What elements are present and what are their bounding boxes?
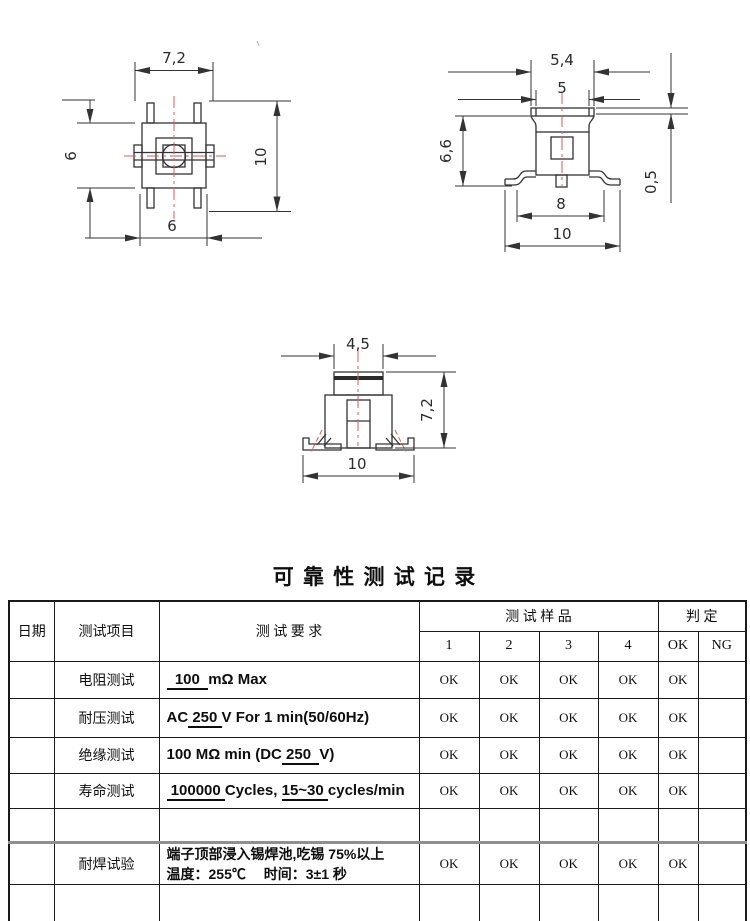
sample-result-cell-2: OK xyxy=(479,737,539,773)
judge-ng-cell xyxy=(698,698,746,737)
reliability-test-table-wrap: 日期 测试项目 测 试 要 求 测 试 样 品 判 定 1 2 3 4 OK N… xyxy=(8,600,747,921)
requirement-text: 温度：255℃ 时间：3±1 秒 xyxy=(167,866,347,882)
item-cell xyxy=(54,808,159,842)
dim-label-base-width: 10 xyxy=(347,455,366,473)
judge-ok-cell xyxy=(658,808,698,842)
judge-ok-cell: OK xyxy=(658,698,698,737)
sample-result-cell-1 xyxy=(419,885,479,921)
judge-ng-cell xyxy=(698,661,746,698)
requirement-text: V For 1 min(50/60Hz) xyxy=(222,709,370,726)
header-requirement: 测 试 要 求 xyxy=(159,601,419,661)
dim-label-right-height: 10 xyxy=(252,147,270,166)
requirement-line: AC 250 V For 1 min(50/60Hz) xyxy=(167,707,419,729)
dim-label-pin-span: 8 xyxy=(556,195,566,213)
sample-result-cell-3: OK xyxy=(539,661,598,698)
requirement-text: 100 MΩ min (DC xyxy=(167,746,282,763)
header-judgement: 判 定 xyxy=(658,601,746,631)
dim-label-base-width: 10 xyxy=(552,225,571,243)
sample-result-cell-3: OK xyxy=(539,773,598,808)
sample-result-cell-3 xyxy=(539,885,598,921)
judge-ok-cell: OK xyxy=(658,661,698,698)
judge-ok-cell: OK xyxy=(658,842,698,885)
dim-label-total-height: 7,2 xyxy=(418,398,436,422)
sample-result-cell-2: OK xyxy=(479,698,539,737)
requirement-cell: AC 250 V For 1 min(50/60Hz) xyxy=(159,698,419,737)
sample-result-cell-3 xyxy=(539,808,598,842)
requirement-cell: 100 MΩ min (DC 250 V) xyxy=(159,737,419,773)
requirement-text: V) xyxy=(319,746,334,763)
table-row xyxy=(9,808,746,842)
dim-label-flange-width: 5,4 xyxy=(550,51,574,69)
date-cell xyxy=(9,885,54,921)
requirement-value-underlined: 250 xyxy=(282,746,320,765)
date-cell xyxy=(9,842,54,885)
header-item: 测试项目 xyxy=(54,601,159,661)
table-row: 绝缘测试100 MΩ min (DC 250 V)OKOKOKOKOK xyxy=(9,737,746,773)
scan-artifact xyxy=(257,41,259,46)
judge-ok-cell xyxy=(658,885,698,921)
requirement-cell xyxy=(159,885,419,921)
judge-ng-cell xyxy=(698,885,746,921)
table-row xyxy=(9,885,746,921)
date-cell xyxy=(9,698,54,737)
judge-ng-cell xyxy=(698,842,746,885)
header-sample-2: 2 xyxy=(479,631,539,661)
sample-result-cell-1: OK xyxy=(419,661,479,698)
judge-ok-cell: OK xyxy=(658,773,698,808)
dim-label-left-height: 6 xyxy=(62,151,80,161)
requirement-value-underlined: 15~30 xyxy=(282,782,328,801)
judge-ng-cell xyxy=(698,737,746,773)
header-date: 日期 xyxy=(9,601,54,661)
date-cell xyxy=(9,808,54,842)
table-row: 寿命测试 100000 Cycles, 15~30 cycles/minOKOK… xyxy=(9,773,746,808)
sample-result-cell-3: OK xyxy=(539,842,598,885)
requirement-line: 100 mΩ Max xyxy=(167,669,419,691)
header-sample-3: 3 xyxy=(539,631,598,661)
sample-result-cell-1: OK xyxy=(419,773,479,808)
sample-result-cell-2: OK xyxy=(479,773,539,808)
requirement-line: 100 MΩ min (DC 250 V) xyxy=(167,744,419,766)
sample-result-cell-4 xyxy=(598,808,658,842)
requirement-cell: 100 mΩ Max xyxy=(159,661,419,698)
requirement-text: mΩ Max xyxy=(208,671,267,688)
requirement-value-underlined: 100 xyxy=(167,671,209,690)
reliability-test-table: 日期 测试项目 测 试 要 求 测 试 样 品 判 定 1 2 3 4 OK N… xyxy=(8,600,747,921)
top-view-drawing: 7,2 6 10 6 xyxy=(62,49,291,246)
sample-result-cell-2 xyxy=(479,885,539,921)
item-cell: 寿命测试 xyxy=(54,773,159,808)
item-cell: 绝缘测试 xyxy=(54,737,159,773)
item-cell xyxy=(54,885,159,921)
requirement-cell: 端子顶部浸入锡焊池,吃锡 75%以上温度：255℃ 时间：3±1 秒 xyxy=(159,842,419,885)
header-ng: NG xyxy=(698,631,746,661)
test-table-body: 电阻测试 100 mΩ MaxOKOKOKOKOK耐压测试AC 250 V Fo… xyxy=(9,661,746,921)
date-cell xyxy=(9,737,54,773)
requirement-line: 端子顶部浸入锡焊池,吃锡 75%以上 xyxy=(167,844,419,864)
sample-result-cell-4: OK xyxy=(598,773,658,808)
dim-label-stem-width: 4,5 xyxy=(346,335,370,353)
item-cell: 耐压测试 xyxy=(54,698,159,737)
sample-result-cell-4: OK xyxy=(598,661,658,698)
table-row: 电阻测试 100 mΩ MaxOKOKOKOKOK xyxy=(9,661,746,698)
datasheet-page: 7,2 6 10 6 xyxy=(0,0,750,921)
header-ok: OK xyxy=(658,631,698,661)
side-view-drawing: 5,4 5 6,6 0,5 8 10 xyxy=(437,51,688,252)
item-cell: 耐焊试验 xyxy=(54,842,159,885)
header-sample-4: 4 xyxy=(598,631,658,661)
judge-ng-cell xyxy=(698,808,746,842)
requirement-cell: 100000 Cycles, 15~30 cycles/min xyxy=(159,773,419,808)
dim-label-top-width: 7,2 xyxy=(162,49,186,67)
dim-label-bottom-width: 6 xyxy=(167,217,177,235)
page-title: 可 靠 性 测 试 记 录 xyxy=(0,561,750,591)
header-samples: 测 试 样 品 xyxy=(419,601,658,631)
sample-result-cell-3: OK xyxy=(539,698,598,737)
sample-result-cell-1: OK xyxy=(419,842,479,885)
front-view-drawing: 4,5 7,2 10 xyxy=(281,335,456,483)
item-cell: 电阻测试 xyxy=(54,661,159,698)
sample-result-cell-3: OK xyxy=(539,737,598,773)
dim-label-stem-width: 5 xyxy=(557,79,567,97)
requirement-text: cycles/min xyxy=(328,782,405,799)
sample-result-cell-4: OK xyxy=(598,737,658,773)
date-cell xyxy=(9,773,54,808)
sample-result-cell-2: OK xyxy=(479,842,539,885)
requirement-value-underlined: 250 xyxy=(188,709,221,728)
table-row: 耐压测试AC 250 V For 1 min(50/60Hz)OKOKOKOKO… xyxy=(9,698,746,737)
requirement-text: Cycles, xyxy=(225,782,282,799)
sample-result-cell-1 xyxy=(419,808,479,842)
table-row: 耐焊试验端子顶部浸入锡焊池,吃锡 75%以上温度：255℃ 时间：3±1 秒OK… xyxy=(9,842,746,885)
date-cell xyxy=(9,661,54,698)
sample-result-cell-4: OK xyxy=(598,842,658,885)
requirement-cell xyxy=(159,808,419,842)
requirement-line: 温度：255℃ 时间：3±1 秒 xyxy=(167,864,419,884)
sample-result-cell-1: OK xyxy=(419,737,479,773)
technical-drawings: 7,2 6 10 6 xyxy=(0,0,750,555)
requirement-text: 端子顶部浸入锡焊池,吃锡 75%以上 xyxy=(167,846,385,862)
sample-result-cell-4 xyxy=(598,885,658,921)
sample-result-cell-2: OK xyxy=(479,661,539,698)
dim-label-body-height: 6,6 xyxy=(437,139,455,163)
header-sample-1: 1 xyxy=(419,631,479,661)
requirement-text: AC xyxy=(167,709,189,726)
sample-result-cell-4: OK xyxy=(598,698,658,737)
sample-result-cell-2 xyxy=(479,808,539,842)
dim-label-flange-thickness: 0,5 xyxy=(642,170,660,194)
judge-ng-cell xyxy=(698,773,746,808)
requirement-line: 100000 Cycles, 15~30 cycles/min xyxy=(167,780,419,802)
requirement-value-underlined: 100000 xyxy=(167,782,225,801)
judge-ok-cell: OK xyxy=(658,737,698,773)
sample-result-cell-1: OK xyxy=(419,698,479,737)
